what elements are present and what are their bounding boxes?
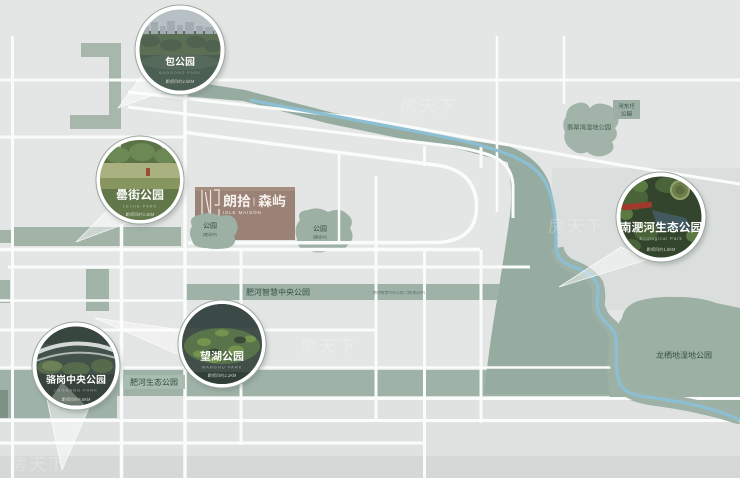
svg-text:ISLE MAISON: ISLE MAISON <box>223 210 262 215</box>
svg-text:WANGHU PARK: WANGHU PARK <box>202 365 243 370</box>
svg-text:LEIJIE PARK: LEIJIE PARK <box>123 204 158 209</box>
svg-text:LUOGANG PARK: LUOGANG PARK <box>54 388 98 393</box>
svg-text:BAOGONG PARK: BAOGONG PARK <box>159 70 201 75</box>
svg-text:Ecological Park: Ecological Park <box>639 236 682 241</box>
